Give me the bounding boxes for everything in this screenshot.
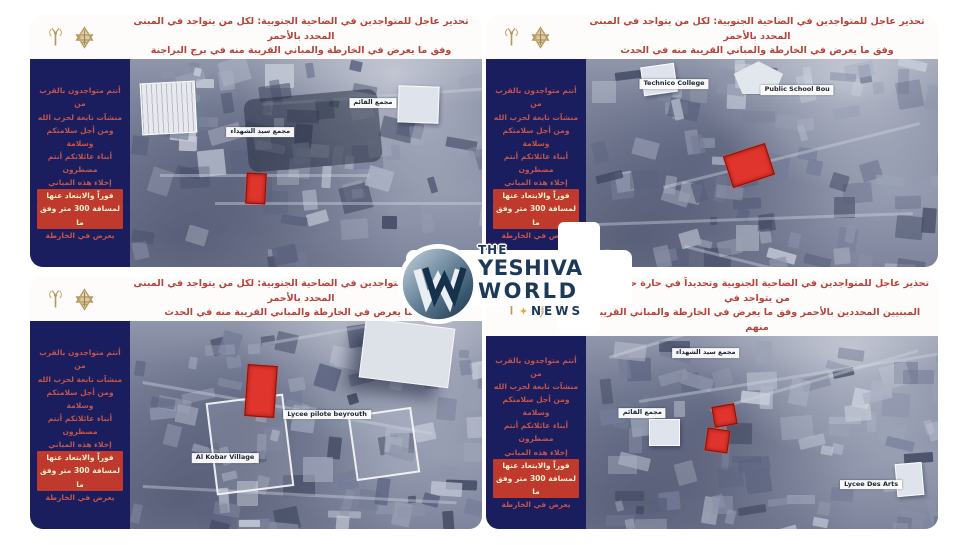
sidebar-warning-line: منشآت تابعة لحزب الله bbox=[34, 373, 126, 386]
map-building bbox=[131, 229, 155, 244]
antenna-icon bbox=[46, 26, 65, 48]
map-label: Lycee pilote beyrouth bbox=[283, 410, 371, 420]
header-icons bbox=[46, 26, 96, 49]
antenna-icon bbox=[502, 26, 521, 48]
warning-header: تحذير عاجل للمتواجدين في الضاحية الجنوبي… bbox=[30, 277, 482, 321]
map-building bbox=[803, 253, 831, 267]
map-building bbox=[737, 504, 766, 516]
sidebar-warning-line: أبناء عائلاتكم أنتم مضطرون bbox=[490, 150, 582, 176]
map-building bbox=[833, 247, 850, 264]
map-building bbox=[188, 356, 197, 369]
map-building bbox=[209, 224, 227, 236]
warning-card-bottom-left: تحذير عاجل للمتواجدين في الضاحية الجنوبي… bbox=[30, 277, 482, 529]
map-building bbox=[674, 401, 685, 417]
map-building bbox=[336, 515, 351, 529]
map-building bbox=[280, 215, 307, 228]
warning-sidebar: أنتم متواجدون بالقرب منمنشآت تابعة لحزب … bbox=[486, 59, 586, 267]
target-building-highlight bbox=[245, 173, 266, 205]
map-label: Technico College bbox=[639, 79, 708, 89]
map-building bbox=[873, 81, 886, 95]
idf-emblem-icon bbox=[529, 26, 552, 49]
map-building bbox=[131, 241, 150, 261]
map-building bbox=[131, 135, 149, 156]
map-building bbox=[305, 209, 328, 227]
warning-header-text: تحذير عاجل للمتواجدين في الضاحية الجنوبي… bbox=[558, 15, 938, 59]
map-building bbox=[592, 81, 617, 103]
sidebar-warning-text: أنتم متواجدون بالقرب منمنشآت تابعة لحزب … bbox=[486, 84, 586, 242]
sidebar-warning-line: أبناء عائلاتكم أنتم مضطرون bbox=[34, 150, 126, 176]
map-label: مجمع القائم bbox=[619, 408, 666, 418]
warning-card-top-right: تحذير عاجل للمتواجدين في الضاحية الجنوبي… bbox=[486, 15, 938, 267]
map-building bbox=[467, 386, 482, 413]
map-building bbox=[820, 445, 834, 456]
warning-card-bottom-right: تحذير عاجل للمتواجدين في الضاحية الجنوبي… bbox=[486, 277, 938, 529]
warning-header-text: تحذير عاجل للمتواجدين في الضاحية الجنوبي… bbox=[102, 277, 482, 321]
sidebar-warning-line: يعرض في الخارطة bbox=[490, 498, 582, 511]
target-building-highlight bbox=[244, 364, 278, 418]
map-building bbox=[327, 436, 342, 459]
warning-header: تحذير عاجل للمتواجدين في الضاحية الجنوبي… bbox=[486, 15, 938, 59]
card-body: أنتم متواجدون بالقرب منمنشآت تابعة لحزب … bbox=[486, 59, 938, 267]
sidebar-warning-line: إخلاء هذه المباني bbox=[490, 176, 582, 189]
map-building bbox=[349, 60, 363, 72]
map-building bbox=[220, 92, 234, 113]
satellite-map: مجمع سيد الشهداءمجمع القائم bbox=[130, 59, 482, 267]
satellite-map: Technico CollegePublic School Bou bbox=[586, 59, 938, 267]
map-building bbox=[615, 491, 644, 501]
map-building bbox=[725, 509, 737, 525]
header-icons bbox=[46, 288, 96, 311]
map-building bbox=[758, 213, 776, 232]
map-building bbox=[409, 125, 424, 145]
map-building bbox=[894, 214, 923, 239]
map-building bbox=[797, 118, 815, 131]
map-building bbox=[635, 519, 668, 529]
sidebar-warning-highlight-line: فوراً والابتعاد عنها bbox=[493, 189, 579, 202]
map-building bbox=[395, 204, 423, 226]
target-building-highlight bbox=[723, 142, 775, 187]
map-building bbox=[310, 234, 341, 251]
map-landmark-white bbox=[397, 85, 439, 124]
map-building bbox=[741, 110, 774, 121]
map-building bbox=[313, 363, 341, 392]
warning-sidebar: أنتم متواجدون بالقرب منمنشآت تابعة لحزب … bbox=[30, 321, 130, 529]
sidebar-warning-line: إخلاء هذه المباني bbox=[34, 176, 126, 189]
sidebar-warning-line: يعرض في الخارطة bbox=[34, 229, 126, 242]
warning-header: تحذير عاجل للمتواجدين في الضاحية الجنوبي… bbox=[486, 277, 938, 336]
sidebar-warning-line: أنتم متواجدون بالقرب من bbox=[34, 84, 126, 110]
map-building bbox=[805, 159, 823, 177]
map-building bbox=[813, 516, 829, 528]
map-landmark-shadow-building bbox=[359, 321, 456, 389]
news-image-canvas: تحذير عاجل للمتواجدين في الضاحية الجنوبي… bbox=[0, 0, 968, 545]
card-body: أنتم متواجدون بالقرب منمنشآت تابعة لحزب … bbox=[486, 336, 938, 529]
map-building bbox=[248, 343, 261, 354]
idf-emblem-icon bbox=[529, 295, 552, 318]
map-label: Lycee Des Arts bbox=[840, 480, 902, 490]
sidebar-warning-highlight-line: لمسافة 300 متر وفق ما bbox=[37, 464, 123, 490]
map-building bbox=[130, 503, 143, 523]
sidebar-warning-line: إخلاء هذه المباني bbox=[34, 438, 126, 451]
map-building bbox=[459, 359, 473, 375]
map-building bbox=[855, 254, 874, 267]
map-building bbox=[442, 510, 455, 529]
antenna-icon bbox=[502, 295, 521, 317]
map-building bbox=[937, 156, 938, 173]
sidebar-warning-highlight-line: فوراً والابتعاد عنها bbox=[493, 459, 579, 472]
satellite-map: Lycee pilote beyrouthAl Kobar Village bbox=[130, 321, 482, 529]
map-building bbox=[162, 70, 176, 79]
warning-cards-grid: تحذير عاجل للمتواجدين في الضاحية الجنوبي… bbox=[0, 0, 968, 545]
map-building bbox=[463, 498, 482, 518]
map-building bbox=[921, 207, 937, 233]
map-building bbox=[436, 397, 457, 421]
map-building bbox=[926, 500, 938, 525]
map-landmark-white bbox=[649, 419, 679, 446]
map-building bbox=[837, 347, 864, 362]
map-building bbox=[134, 360, 146, 376]
sidebar-warning-highlight-line: فوراً والابتعاد عنها bbox=[37, 189, 123, 202]
map-building bbox=[467, 416, 482, 438]
map-building bbox=[876, 175, 905, 187]
map-building bbox=[924, 84, 938, 112]
warning-header-text: تحذير عاجل للمتواجدين في الضاحية الجنوبي… bbox=[558, 277, 938, 336]
sidebar-warning-line: أنتم متواجدون بالقرب من bbox=[490, 84, 582, 110]
sidebar-warning-line: أنتم متواجدون بالقرب من bbox=[34, 346, 126, 372]
map-building bbox=[193, 67, 202, 77]
sidebar-warning-line: يعرض في الخارطة bbox=[490, 229, 582, 242]
map-building bbox=[422, 248, 449, 267]
map-label: Public School Bou bbox=[761, 85, 834, 95]
map-building bbox=[185, 224, 209, 246]
map-building bbox=[347, 393, 360, 406]
sidebar-warning-line: منشآت تابعة لحزب الله bbox=[490, 111, 582, 124]
card-body: أنتم متواجدون بالقرب منمنشآت تابعة لحزب … bbox=[30, 321, 482, 529]
map-building bbox=[745, 469, 773, 495]
warning-sidebar: أنتم متواجدون بالقرب منمنشآت تابعة لحزب … bbox=[30, 59, 130, 267]
map-building bbox=[631, 137, 659, 160]
warning-header-text: تحذير عاجل للمتواجدين في الضاحية الجنوبي… bbox=[102, 15, 482, 59]
map-label: مجمع سيد الشهداء bbox=[672, 348, 740, 358]
map-label: Al Kobar Village bbox=[192, 453, 258, 463]
map-building bbox=[851, 81, 863, 97]
map-building bbox=[147, 166, 174, 195]
map-building bbox=[776, 524, 799, 529]
map-building bbox=[163, 423, 183, 447]
sidebar-warning-text: أنتم متواجدون بالقرب منمنشآت تابعة لحزب … bbox=[486, 354, 586, 512]
sidebar-warning-line: يعرض في الخارطة bbox=[34, 491, 126, 504]
map-building bbox=[673, 460, 697, 486]
map-building bbox=[302, 189, 318, 211]
map-building bbox=[893, 523, 908, 529]
target-building-highlight bbox=[704, 427, 730, 453]
warning-sidebar: أنتم متواجدون بالقرب منمنشآت تابعة لحزب … bbox=[486, 336, 586, 529]
map-building bbox=[832, 105, 861, 120]
map-building bbox=[649, 498, 667, 512]
sidebar-warning-highlight-line: لمسافة 300 متر وفق ما bbox=[37, 202, 123, 228]
map-building bbox=[179, 166, 210, 189]
idf-emblem-icon bbox=[73, 288, 96, 311]
map-building bbox=[205, 344, 235, 355]
map-building bbox=[830, 72, 856, 83]
map-building bbox=[756, 341, 772, 364]
map-building bbox=[277, 170, 300, 185]
sidebar-warning-line: ومن أجل سلامتكم وسلامة bbox=[490, 393, 582, 419]
map-building bbox=[602, 249, 619, 267]
idf-emblem-icon bbox=[73, 26, 96, 49]
satellite-map: مجمع سيد الشهداءمجمع القائمLycee Des Art… bbox=[586, 336, 938, 529]
map-building bbox=[775, 113, 799, 130]
warning-card-top-left: تحذير عاجل للمتواجدين في الضاحية الجنوبي… bbox=[30, 15, 482, 267]
sidebar-warning-highlight-line: فوراً والابتعاد عنها bbox=[37, 451, 123, 464]
card-body: أنتم متواجدون بالقرب منمنشآت تابعة لحزب … bbox=[30, 59, 482, 267]
map-building bbox=[217, 59, 252, 87]
map-building bbox=[629, 171, 658, 190]
map-building bbox=[787, 232, 801, 249]
sidebar-warning-line: ومن أجل سلامتكم وسلامة bbox=[490, 124, 582, 150]
map-building bbox=[427, 177, 438, 194]
map-building bbox=[396, 504, 425, 519]
warning-header: تحذير عاجل للمتواجدين في الضاحية الجنوبي… bbox=[30, 15, 482, 59]
sidebar-warning-highlight-line: لمسافة 300 متر وفق ما bbox=[493, 202, 579, 228]
sidebar-warning-text: أنتم متواجدون بالقرب منمنشآت تابعة لحزب … bbox=[30, 346, 130, 504]
map-building bbox=[480, 206, 482, 228]
sidebar-warning-line: ومن أجل سلامتكم وسلامة bbox=[34, 124, 126, 150]
map-building bbox=[382, 216, 397, 230]
map-building bbox=[615, 500, 625, 512]
map-building bbox=[870, 380, 892, 395]
map-building bbox=[459, 350, 470, 359]
sidebar-warning-highlight-line: لمسافة 300 متر وفق ما bbox=[493, 472, 579, 498]
map-building bbox=[464, 442, 482, 462]
header-icons bbox=[502, 26, 552, 49]
map-building bbox=[600, 379, 614, 405]
header-icons bbox=[502, 295, 552, 318]
sidebar-warning-text: أنتم متواجدون بالقرب منمنشآت تابعة لحزب … bbox=[30, 84, 130, 242]
sidebar-warning-line: أنتم متواجدون بالقرب من bbox=[490, 354, 582, 380]
map-building bbox=[844, 404, 872, 422]
map-landmark-grid-building bbox=[139, 81, 196, 136]
map-building bbox=[768, 496, 801, 507]
map-label: مجمع القائم bbox=[349, 98, 396, 108]
map-building bbox=[239, 520, 260, 528]
map-building bbox=[305, 62, 315, 78]
map-label: مجمع سيد الشهداء bbox=[226, 127, 294, 137]
sidebar-warning-line: منشآت تابعة لحزب الله bbox=[34, 111, 126, 124]
sidebar-warning-line: ومن أجل سلامتكم وسلامة bbox=[34, 386, 126, 412]
map-building bbox=[817, 501, 831, 516]
map-building bbox=[341, 218, 370, 240]
map-building bbox=[885, 436, 915, 452]
map-building bbox=[303, 457, 333, 483]
map-building bbox=[374, 478, 390, 506]
map-building bbox=[272, 244, 299, 267]
target-building-highlight bbox=[711, 404, 737, 429]
map-building bbox=[338, 479, 359, 490]
map-building bbox=[635, 505, 644, 514]
sidebar-warning-line: منشآت تابعة لحزب الله bbox=[490, 380, 582, 393]
antenna-icon bbox=[46, 288, 65, 310]
map-building bbox=[895, 79, 925, 110]
map-building bbox=[903, 370, 934, 384]
sidebar-warning-line: إخلاء هذه المباني bbox=[490, 446, 582, 459]
map-building bbox=[896, 258, 926, 267]
map-building bbox=[590, 141, 608, 164]
map-building bbox=[895, 195, 921, 209]
sidebar-warning-line: أبناء عائلاتكم أنتم مضطرون bbox=[490, 419, 582, 445]
map-building bbox=[218, 377, 243, 390]
map-building bbox=[929, 175, 938, 188]
sidebar-warning-line: أبناء عائلاتكم أنتم مضطرون bbox=[34, 412, 126, 438]
